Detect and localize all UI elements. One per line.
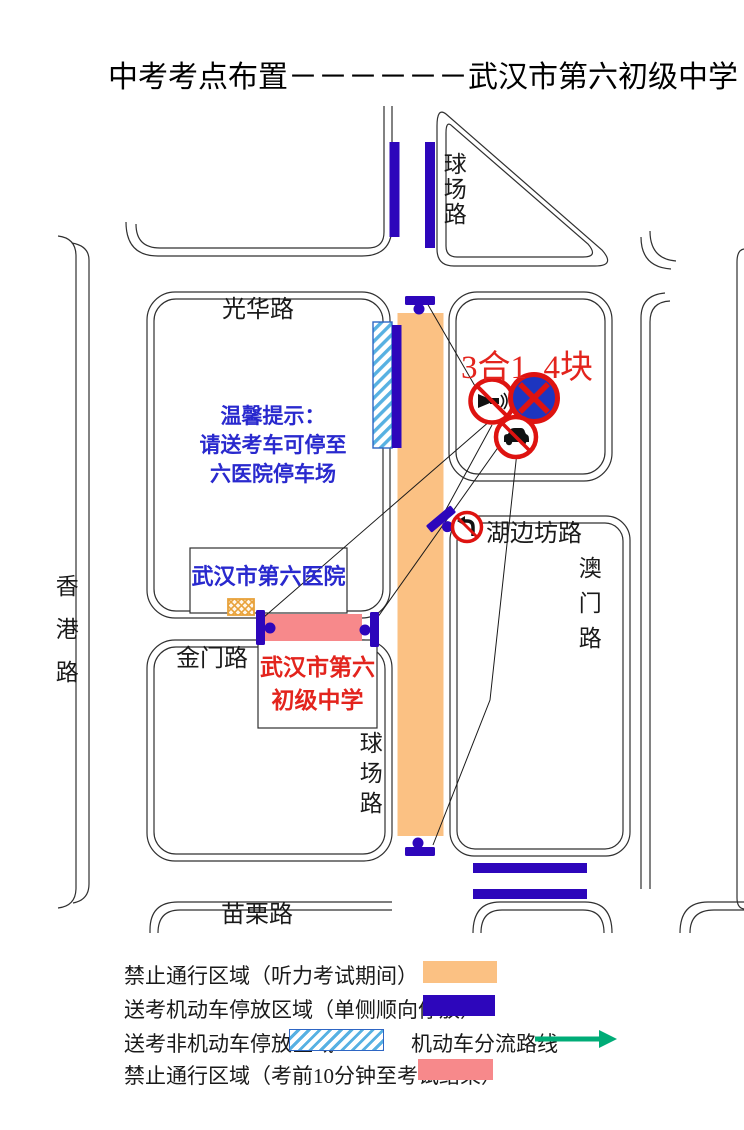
motor-parking-bar-south-2 [473,889,587,899]
road-label-qiuchang-south: 球场路 [356,731,381,821]
barrier-icon-north [405,296,435,315]
legend-swatch-hatched [289,1029,384,1051]
parking-notice: 温馨提示： 请送考车可停至 六医院停车场 [160,402,386,489]
block-hubianfang-outer [450,516,630,856]
parking-notice-line1: 温馨提示： [160,402,386,431]
legend-swatch-orange [423,961,497,983]
block-triangle-inner [446,124,592,257]
road-right-inner [650,301,670,889]
road-xianggang-b [72,243,89,903]
motor-parking-bar-north-east [425,142,435,248]
block-bottom-right-inner [690,910,744,933]
parking-notice-line2: 请送考车可停至 [160,431,386,460]
road-label-aomen: 澳门路 [575,556,600,661]
corner-ne-outer [641,237,671,269]
road-xianggang-a [58,236,76,908]
road-label-qiuchang-north: 球场路 [440,152,465,227]
road-far-right [737,249,744,909]
closed-zone-listening [398,313,444,836]
legend-swatch-pink [418,1059,493,1080]
exam-site-map-page: { "title": "中考考点布置－－－－－－武汉市第六初级中学", "col… [0,0,744,1130]
legend-label-closed-listening: 禁止通行区域（听力考试期间） [124,960,418,990]
school-label-line2: 初级中学 [259,684,376,717]
motor-parking-bar-mid [392,325,402,448]
block-bottom-mid-outer [473,902,612,933]
block-topleft-inner [136,106,384,248]
signs-note: 3合1 4块 [461,340,593,388]
no-motor-vehicle-sign-icon [496,417,536,457]
hospital-label: 武汉市第六医院 [191,559,346,591]
block-bottom-right-outer [680,902,744,933]
barrier-icon-south [405,838,435,857]
motor-parking-bar-north-west [390,142,400,237]
legend-swatch-navy [423,995,495,1016]
road-label-hubianfang: 湖边坊路 [486,521,582,547]
no-left-turn-sign-icon [453,513,482,542]
road-label-miaoli: 苗栗路 [221,902,293,928]
road-label-guanghua: 光华路 [197,297,319,323]
flow-route-arrow-icon [533,1029,619,1049]
motor-parking-bar-south-1 [473,863,587,873]
road-label-xianggang: 香港路 [52,574,77,703]
corner-ne-inner [650,231,676,261]
school-label: 武汉市第六 初级中学 [259,651,376,717]
closed-zone-exam [265,614,362,641]
page-title: 中考考点布置－－－－－－武汉市第六初级中学 [108,52,728,96]
road-label-jinmen: 金门路 [176,646,248,672]
block-topleft-outer [126,106,392,256]
block-bottom-mid-inner [481,910,604,933]
hospital-gate-marker [228,599,254,615]
school-label-line1: 武汉市第六 [259,651,376,684]
road-right-outer [641,293,665,889]
parking-notice-line3: 六医院停车场 [160,460,386,489]
